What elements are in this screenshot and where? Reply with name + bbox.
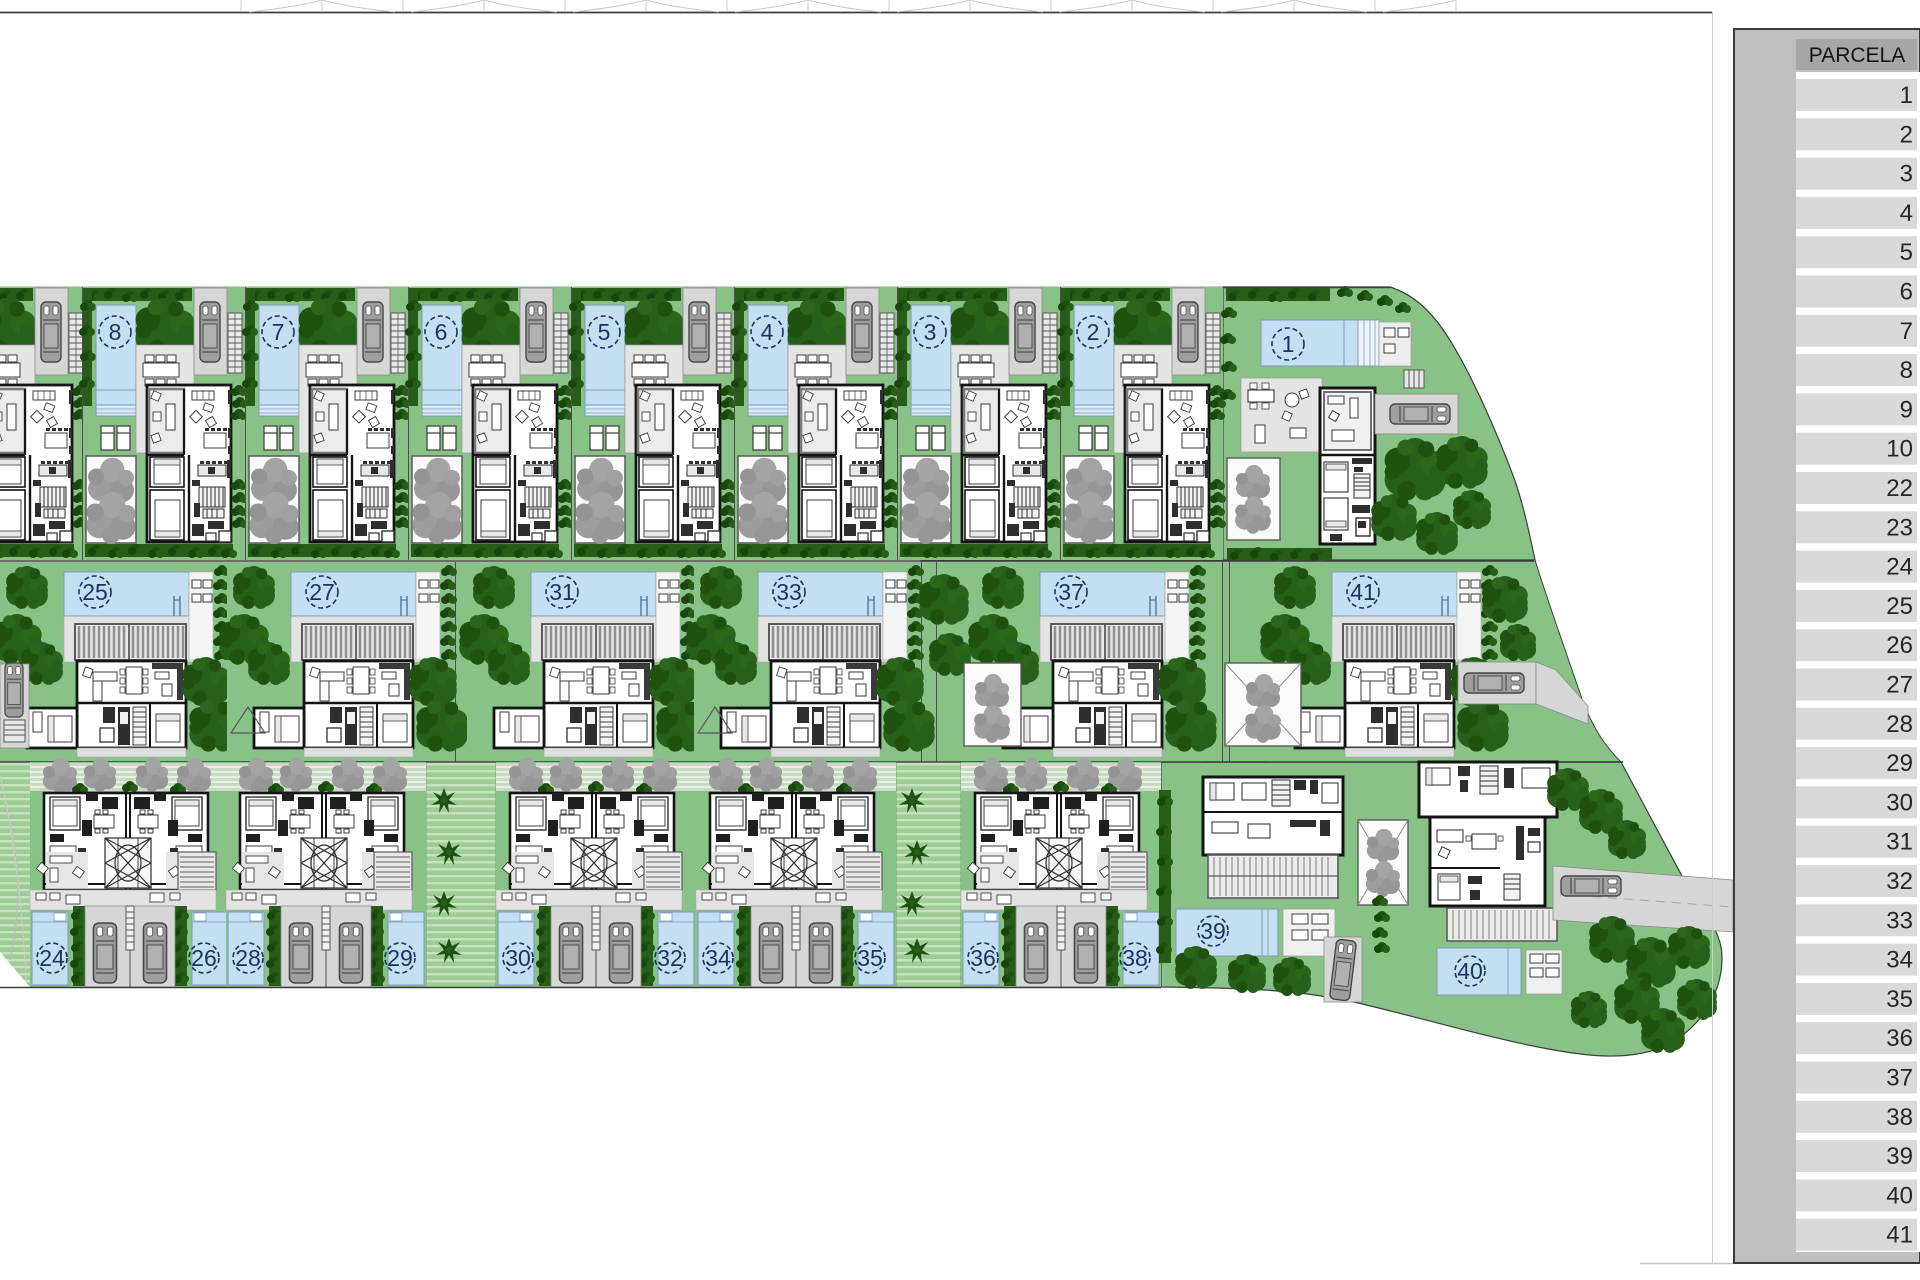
svg-text:34: 34 (705, 945, 731, 971)
svg-text:28: 28 (235, 945, 261, 971)
svg-text:38: 38 (1886, 1104, 1913, 1131)
svg-text:25: 25 (82, 579, 108, 605)
svg-text:38: 38 (1122, 945, 1148, 971)
svg-text:32: 32 (657, 945, 683, 971)
svg-text:5: 5 (1900, 239, 1913, 266)
svg-text:3: 3 (1900, 161, 1913, 188)
svg-text:33: 33 (1886, 907, 1913, 934)
svg-text:7: 7 (1900, 318, 1913, 345)
svg-text:40: 40 (1886, 1182, 1913, 1209)
svg-text:41: 41 (1350, 579, 1376, 605)
svg-text:39: 39 (1886, 1143, 1913, 1170)
svg-text:4: 4 (1900, 200, 1913, 227)
svg-text:6: 6 (435, 319, 448, 345)
svg-text:26: 26 (1886, 632, 1913, 659)
svg-text:33: 33 (776, 579, 802, 605)
svg-text:1: 1 (1282, 331, 1295, 357)
svg-text:27: 27 (1886, 672, 1913, 699)
svg-text:2: 2 (1087, 319, 1100, 345)
svg-text:41: 41 (1886, 1222, 1913, 1249)
svg-text:36: 36 (1886, 1025, 1913, 1052)
svg-text:29: 29 (387, 945, 413, 971)
svg-text:2: 2 (1900, 121, 1913, 148)
svg-text:30: 30 (505, 945, 531, 971)
svg-text:31: 31 (549, 579, 575, 605)
svg-text:34: 34 (1886, 947, 1913, 974)
svg-text:7: 7 (272, 319, 285, 345)
svg-text:4: 4 (761, 319, 774, 345)
svg-text:31: 31 (1886, 829, 1913, 856)
svg-text:5: 5 (598, 319, 611, 345)
svg-text:40: 40 (1457, 958, 1483, 984)
svg-text:32: 32 (1886, 868, 1913, 895)
svg-text:8: 8 (1900, 357, 1913, 384)
svg-text:37: 37 (1058, 579, 1084, 605)
svg-text:24: 24 (39, 945, 65, 971)
svg-text:22: 22 (1886, 475, 1913, 502)
svg-text:29: 29 (1886, 750, 1913, 777)
svg-text:28: 28 (1886, 711, 1913, 738)
svg-text:9: 9 (1900, 396, 1913, 423)
svg-text:27: 27 (309, 579, 335, 605)
svg-text:8: 8 (109, 319, 122, 345)
svg-text:35: 35 (1886, 986, 1913, 1013)
svg-text:25: 25 (1886, 593, 1913, 620)
svg-text:PARCELA: PARCELA (1809, 44, 1905, 67)
svg-text:35: 35 (857, 945, 883, 971)
svg-text:37: 37 (1886, 1065, 1913, 1092)
svg-text:24: 24 (1886, 554, 1913, 581)
svg-text:6: 6 (1900, 279, 1913, 306)
svg-text:23: 23 (1886, 514, 1913, 541)
svg-text:30: 30 (1886, 789, 1913, 816)
svg-text:36: 36 (970, 945, 996, 971)
svg-text:39: 39 (1200, 918, 1226, 944)
svg-text:26: 26 (191, 945, 217, 971)
svg-text:10: 10 (1886, 436, 1913, 463)
svg-text:3: 3 (924, 319, 937, 345)
svg-text:1: 1 (1900, 82, 1913, 109)
